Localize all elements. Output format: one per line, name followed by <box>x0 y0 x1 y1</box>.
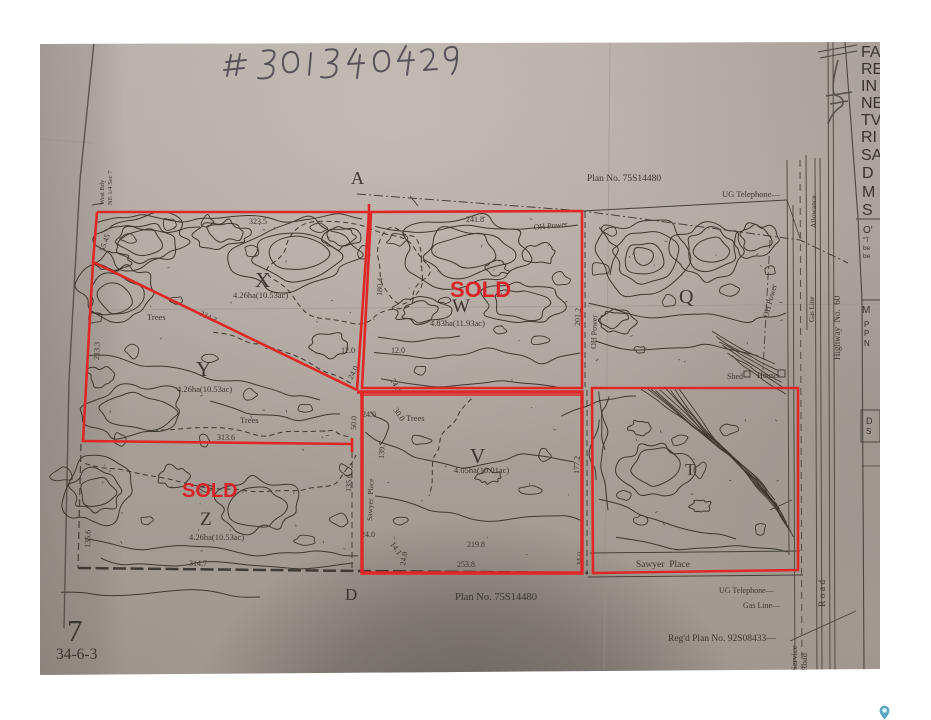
svg-text:D: D <box>345 585 357 604</box>
svg-text:50.0: 50.0 <box>349 416 358 430</box>
svg-text:be: be <box>863 245 871 252</box>
svg-text:UG Telephone—: UG Telephone— <box>722 189 781 199</box>
svg-text:213.3: 213.3 <box>92 342 102 360</box>
svg-text:Trees: Trees <box>240 415 259 425</box>
svg-text:7: 7 <box>67 613 83 648</box>
svg-text:241.8: 241.8 <box>466 215 484 224</box>
svg-text:4.05ha(10.01ac): 4.05ha(10.01ac) <box>454 465 509 475</box>
svg-text:UG Telephone—: UG Telephone— <box>719 586 775 595</box>
svg-text:be: be <box>863 253 871 260</box>
svg-text:4.26ha(10.53ac): 4.26ha(10.53ac) <box>177 384 232 394</box>
svg-text:Trees: Trees <box>147 312 166 322</box>
svg-text:Trees: Trees <box>406 413 425 423</box>
svg-text:RI: RI <box>861 129 877 146</box>
svg-text:M: M <box>862 184 875 201</box>
svg-text:Shed: Shed <box>727 372 743 381</box>
svg-text:D: D <box>862 165 874 182</box>
svg-text:313.6: 313.6 <box>217 433 235 442</box>
svg-text:Road: Road <box>799 652 809 671</box>
svg-text:Service: Service <box>789 645 799 671</box>
svg-text:Highway No. 60: Highway No. 60 <box>832 295 842 360</box>
svg-text:4.83ha(11.93ac): 4.83ha(11.93ac) <box>430 318 485 328</box>
svg-text:Allowance: Allowance <box>809 195 818 228</box>
svg-text:TV: TV <box>861 112 882 129</box>
svg-text:4.26ha(10.53ac): 4.26ha(10.53ac) <box>189 532 244 542</box>
svg-text:Sawyer Place: Sawyer Place <box>636 560 690 570</box>
svg-text:NE: NE <box>861 95 883 112</box>
svg-text:4.26ha(10.53ac): 4.26ha(10.53ac) <box>233 290 288 300</box>
svg-text:Reg'd Plan No. 92S08433—: Reg'd Plan No. 92S08433— <box>668 634 776 644</box>
svg-text:House: House <box>757 371 778 380</box>
svg-text:12.0: 12.0 <box>391 346 405 355</box>
svg-text:D: D <box>866 416 873 426</box>
svg-text:P: P <box>864 320 869 329</box>
svg-text:X: X <box>255 268 270 292</box>
svg-text:S: S <box>866 427 871 436</box>
svg-text:T: T <box>685 460 696 479</box>
svg-text:12.0: 12.0 <box>341 346 355 355</box>
svg-text:180.4: 180.4 <box>375 278 385 296</box>
svg-text:135.6: 135.6 <box>344 474 354 492</box>
svg-text:Gas Line: Gas Line <box>808 297 816 322</box>
svg-text:219.8: 219.8 <box>467 540 485 549</box>
svg-text:M: M <box>862 305 870 316</box>
svg-text:A: A <box>351 168 364 188</box>
svg-text:Gas Line—: Gas Line— <box>743 601 781 610</box>
svg-text:135.6: 135.6 <box>83 530 93 548</box>
svg-text:34-6-3: 34-6-3 <box>56 646 98 663</box>
svg-text:West Bdy: West Bdy <box>99 179 106 205</box>
svg-text:SOLD: SOLD <box>450 277 511 302</box>
svg-text:OH Power: OH Power <box>589 314 599 349</box>
svg-text:P: P <box>864 329 869 338</box>
svg-text:NE 1/4 Sec 7: NE 1/4 Sec 7 <box>107 170 114 205</box>
svg-text:Y: Y <box>196 357 211 381</box>
svg-text:Plan No. 75S14480: Plan No. 75S14480 <box>587 174 661 184</box>
svg-text:314.7: 314.7 <box>189 559 207 568</box>
svg-text:S: S <box>862 202 873 219</box>
svg-text:SOLD: SOLD <box>182 480 238 502</box>
svg-text:177.2: 177.2 <box>572 456 582 474</box>
svg-text:FA: FA <box>861 44 881 61</box>
svg-text:24.0: 24.0 <box>362 410 376 419</box>
svg-text:SA: SA <box>861 147 883 164</box>
svg-text:139.7: 139.7 <box>377 441 387 459</box>
svg-text:253.8: 253.8 <box>457 560 475 569</box>
svg-text:Plan No. 75S14480: Plan No. 75S14480 <box>455 592 537 603</box>
svg-text:Q: Q <box>679 286 694 308</box>
svg-text:IN: IN <box>861 78 877 95</box>
svg-text:O': O' <box>863 225 873 236</box>
svg-text:"T: "T <box>863 237 869 244</box>
svg-text:RE: RE <box>861 61 883 78</box>
svg-text:Z: Z <box>200 509 212 530</box>
svg-text:N: N <box>864 339 870 348</box>
svg-text:323.5: 323.5 <box>249 217 267 226</box>
svg-text:Sawyer Place: Sawyer Place <box>365 478 376 521</box>
svg-text:R o a d: R o a d <box>818 580 828 607</box>
